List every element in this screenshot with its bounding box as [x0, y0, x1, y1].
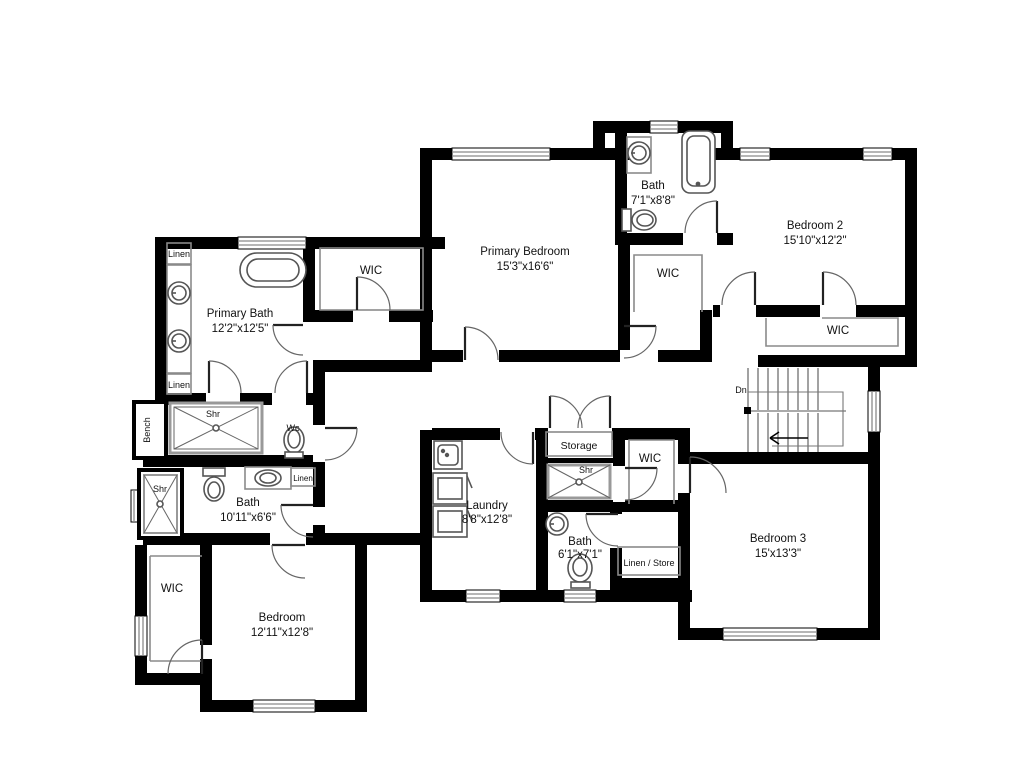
window: [135, 616, 147, 656]
door: [357, 277, 390, 310]
door: [823, 272, 856, 305]
sink: [255, 470, 281, 486]
door: [273, 325, 303, 355]
door: [275, 361, 307, 393]
wic-mid-outline: [629, 440, 674, 504]
label-primary-bedroom-name: Primary Bedroom: [480, 246, 569, 258]
sink: [168, 282, 190, 304]
label-shr-left: Shr: [153, 484, 167, 494]
label-linen-hallbath: Linen: [293, 474, 313, 483]
door: [685, 201, 717, 233]
floor-plan-page: Primary Bath 12'2"x12'5" Primary Bedroom…: [0, 0, 1024, 761]
staircase: [744, 368, 846, 452]
floor-plan-svg: Primary Bath 12'2"x12'5" Primary Bedroom…: [0, 0, 1024, 761]
label-bedroom-bl-name: Bedroom: [259, 612, 306, 624]
window: [253, 700, 315, 712]
sink: [168, 330, 190, 352]
window: [740, 148, 770, 160]
door: [722, 272, 755, 305]
door: [281, 505, 313, 537]
label-wic-hall-top: WIC: [657, 268, 679, 280]
label-bedroom3-name: Bedroom 3: [750, 533, 806, 545]
laundry-sink: [434, 441, 462, 469]
shower: [139, 470, 182, 538]
door: [168, 640, 202, 674]
window: [238, 237, 306, 249]
double-door: [550, 396, 610, 428]
sink: [628, 142, 650, 164]
window: [650, 121, 678, 133]
label-bath-mid-name: Bath: [568, 536, 592, 548]
label-linen-store: Linen / Store: [623, 558, 674, 568]
label-storage: Storage: [561, 440, 598, 452]
label-bath-mid-dims: 6'1"x7'1": [558, 549, 602, 561]
window: [564, 590, 596, 602]
label-wic-mid: WIC: [639, 453, 661, 465]
bathtub: [682, 131, 715, 193]
window: [466, 590, 500, 602]
wic-hall-top-outline: [634, 255, 702, 312]
label-laundry-dims: 8'8"x12'8": [462, 514, 512, 526]
bathtub: [240, 253, 306, 287]
label-bedroom3-dims: 15'x13'3": [755, 548, 801, 560]
label-wc: Wc: [287, 423, 300, 433]
label-shr-primary: Shr: [206, 409, 220, 419]
toilet: [622, 209, 656, 231]
label-bench: Bench: [142, 417, 152, 443]
label-dn: Dn: [735, 385, 747, 395]
label-linen-top: Linen: [168, 249, 190, 259]
label-bath-hall-name: Bath: [236, 497, 260, 509]
label-wic-bottom-left: WIC: [161, 583, 183, 595]
label-wic-primary: WIC: [360, 265, 382, 277]
window: [723, 628, 817, 640]
door: [272, 545, 305, 578]
label-bath-top-dims: 7'1"x8'8": [631, 195, 675, 207]
down-arrow: [770, 432, 808, 444]
label-bath-hall-dims: 10'11"x6'6": [220, 512, 276, 524]
label-bedroom-bl-dims: 12'11"x12'8": [251, 627, 313, 639]
label-linen-bottom: Linen: [168, 380, 190, 390]
sink: [546, 513, 568, 535]
toilet: [203, 468, 225, 501]
label-primary-bedroom-dims: 15'3"x16'6": [497, 261, 554, 273]
door: [209, 361, 241, 393]
door: [325, 428, 357, 460]
label-bedroom2-dims: 15'10"x12'2": [783, 235, 846, 247]
label-bath-top-name: Bath: [641, 180, 665, 192]
window: [868, 391, 880, 432]
newel-post: [744, 407, 751, 414]
wic-bottom-left-outline: [150, 556, 202, 661]
label-wic-bedroom2: WIC: [827, 325, 849, 337]
label-laundry-name: Laundry: [466, 500, 508, 512]
label-shr-mid: Shr: [579, 465, 593, 475]
window: [452, 148, 550, 160]
window: [863, 148, 892, 160]
label-bedroom2-name: Bedroom 2: [787, 220, 843, 232]
label-primary-bath-dims: 12'2"x12'5": [212, 323, 269, 335]
wic-primary-outline: [320, 248, 423, 310]
label-primary-bath-name: Primary Bath: [207, 308, 273, 320]
